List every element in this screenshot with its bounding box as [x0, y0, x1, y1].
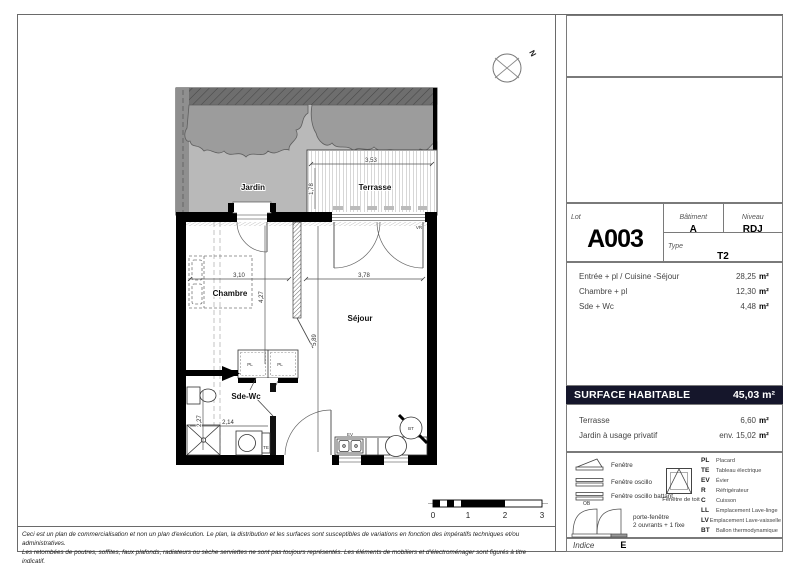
- annex-areas-box: Terrasse 6,60 m² Jardin à usage privatif…: [566, 404, 783, 452]
- room-area-name: Entrée + pl / Cuisine -Séjour: [579, 269, 712, 284]
- scale-bar: 0 1 2 3: [428, 500, 548, 520]
- surface-habitable-value: 45,03: [733, 389, 759, 401]
- shutter-label: VR: [416, 225, 423, 230]
- fenetre-oscillo-battant-symbol-icon: [575, 492, 605, 501]
- annex-row: Terrasse 6,60 m²: [567, 413, 782, 428]
- porte-fenetre-label-1: porte-fenêtre: [633, 514, 669, 521]
- abbr-label: Emplacement Lave-vaisselle: [710, 518, 781, 524]
- dim-terrasse-width: 3,53: [365, 158, 377, 164]
- electrical-panel: [262, 433, 270, 453]
- scale-tick-3: 3: [540, 511, 545, 520]
- abbr-row: BTBallon thermodynamique: [701, 527, 781, 537]
- room-label-chambre: Chambre: [213, 289, 248, 298]
- room-area-value: 28,25: [712, 269, 756, 284]
- closet-label-2: PL: [277, 362, 283, 367]
- dim-chambre-height: 4,27: [259, 291, 265, 303]
- room-area-value: 4,48: [712, 299, 756, 314]
- abbr-label: Ballon thermodynamique: [716, 528, 778, 534]
- dim-sejour-height: 5,89: [312, 334, 318, 346]
- abbr-code: TE: [701, 467, 716, 474]
- room-area-unit: m²: [759, 299, 774, 314]
- washbasin: [236, 431, 262, 455]
- legend-box: Fenêtre Fenêtre oscillo OB Fenêtre oscil…: [566, 452, 783, 538]
- closet-label-1: PL: [247, 362, 253, 367]
- abbr-row: EVÉvier: [701, 477, 781, 487]
- abbr-label: Tableau électrique: [716, 468, 761, 474]
- plan-sheet: N Jardin Terrasse 3,53 1,78: [0, 0, 800, 566]
- scale-tick-2: 2: [503, 511, 508, 520]
- north-compass: N: [493, 49, 538, 82]
- scale-tick-1: 1: [466, 511, 471, 520]
- surface-habitable-unit: m²: [762, 389, 775, 401]
- room-area-row: Entrée + pl / Cuisine -Séjour 28,25 m²: [567, 269, 782, 284]
- room-label-sde-wc: Sde-Wc: [231, 392, 261, 401]
- annex-name: Terrasse: [579, 413, 712, 428]
- abbr-row: LVEmplacement Lave-vaisselle: [701, 517, 781, 527]
- type-value: T2: [668, 251, 778, 262]
- room-label-sejour: Séjour: [348, 314, 373, 323]
- abbr-row: PLPlacard: [701, 457, 781, 467]
- fenetre-label: Fenêtre: [611, 462, 633, 469]
- lot-table: Lot A003 Bâtiment A Niveau RDJ Type T2: [566, 203, 783, 262]
- porte-fenetre-symbol-icon: [571, 507, 629, 538]
- indice-value: E: [620, 540, 626, 550]
- abbr-code: R: [701, 487, 716, 494]
- dim-sejour-width: 3,78: [358, 273, 370, 279]
- room-label-jardin: Jardin: [241, 183, 265, 192]
- batiment-cell: Bâtiment A: [664, 204, 723, 232]
- disclaimer: Ceci est un plan de commercialisation et…: [17, 526, 555, 552]
- abbr-label: Réfrigérateur: [716, 488, 749, 494]
- abbr-label: Évier: [716, 478, 729, 484]
- lot-label: Lot: [571, 214, 581, 221]
- abbr-code: PL: [701, 457, 716, 464]
- dim-sde-width: 2,14: [222, 420, 234, 426]
- fenetre-oscillo-symbol-icon: [575, 478, 605, 487]
- room-area-row: Chambre + pl 12,30 m²: [567, 284, 782, 299]
- indice-row: Indice E: [566, 538, 783, 552]
- logo-placeholder-box: [566, 15, 783, 77]
- empty-info-box: [566, 77, 783, 203]
- annex-value: 6,60: [712, 413, 756, 428]
- north-label: N: [527, 49, 538, 59]
- room-area-unit: m²: [759, 269, 774, 284]
- type-cell: Type T2: [664, 233, 782, 262]
- porte-fenetre-label-2: 2 ouvrants + 1 fixe: [633, 522, 685, 529]
- batiment-label: Bâtiment: [679, 214, 707, 221]
- dim-chambre-width: 3,10: [233, 273, 245, 279]
- abbr-row: TETableau électrique: [701, 467, 781, 477]
- abbr-row: RRéfrigérateur: [701, 487, 781, 497]
- niveau-cell: Niveau RDJ: [723, 204, 783, 232]
- indice-label: Indice: [573, 541, 594, 550]
- fenetre-oscillo-label: Fenêtre oscillo: [611, 479, 652, 486]
- water-heater-label: BT: [408, 426, 414, 431]
- room-area-value: 12,30: [712, 284, 756, 299]
- disclaimer-line-2: Les retombées de poutres, soffites, faux…: [22, 548, 549, 566]
- room-label-terrasse: Terrasse: [359, 183, 392, 192]
- disclaimer-line-1: Ceci est un plan de commercialisation et…: [22, 530, 549, 548]
- surface-habitable-bar: SURFACE HABITABLE 45,03 m²: [566, 386, 783, 404]
- sink-label: EV: [347, 432, 353, 437]
- lot-cell: Lot A003: [567, 204, 664, 261]
- abbr-label: Cuisson: [716, 498, 736, 504]
- fenetre-de-toit-symbol-icon: [665, 467, 693, 495]
- room-area-unit: m²: [759, 284, 774, 299]
- electrical-panel-label: TE: [263, 445, 269, 450]
- annex-unit: m²: [759, 428, 774, 443]
- room-areas-box: Entrée + pl / Cuisine -Séjour 28,25 m² C…: [566, 262, 783, 386]
- dim-sde-height: 2,27: [197, 415, 203, 427]
- room-area-row: Sde + Wc 4,48 m²: [567, 299, 782, 314]
- abbreviation-list: PLPlacard TETableau électrique EVÉvier R…: [701, 457, 781, 537]
- niveau-label: Niveau: [742, 214, 764, 221]
- abbr-label: Emplacement Lave-linge: [716, 508, 778, 514]
- abbr-code: BT: [701, 527, 716, 534]
- abbr-row: CCuisson: [701, 497, 781, 507]
- abbr-label: Placard: [716, 458, 735, 464]
- terrace-area: Terrasse 3,53 1,78: [307, 150, 437, 214]
- shower: [187, 425, 220, 455]
- dim-terrasse-depth: 1,78: [309, 183, 315, 195]
- annex-unit: m²: [759, 413, 774, 428]
- fenetre-symbol-icon: [575, 457, 605, 472]
- room-area-name: Chambre + pl: [579, 284, 712, 299]
- scale-tick-0: 0: [431, 511, 436, 520]
- abbr-code: LV: [701, 517, 710, 524]
- fenetre-de-toit-label: Fenêtre de toit: [657, 497, 705, 503]
- abbr-row: LLEmplacement Lave-linge: [701, 507, 781, 517]
- abbr-code: LL: [701, 507, 716, 514]
- surface-habitable-label: SURFACE HABITABLE: [574, 389, 690, 401]
- annex-value: env. 15,02: [712, 428, 756, 443]
- annex-row: Jardin à usage privatif env. 15,02 m²: [567, 428, 782, 443]
- type-label: Type: [668, 243, 683, 250]
- room-area-name: Sde + Wc: [579, 299, 712, 314]
- abbr-code: C: [701, 497, 716, 504]
- abbr-code: EV: [701, 477, 716, 484]
- annex-name: Jardin à usage privatif: [579, 428, 712, 443]
- lot-number: A003: [571, 225, 659, 254]
